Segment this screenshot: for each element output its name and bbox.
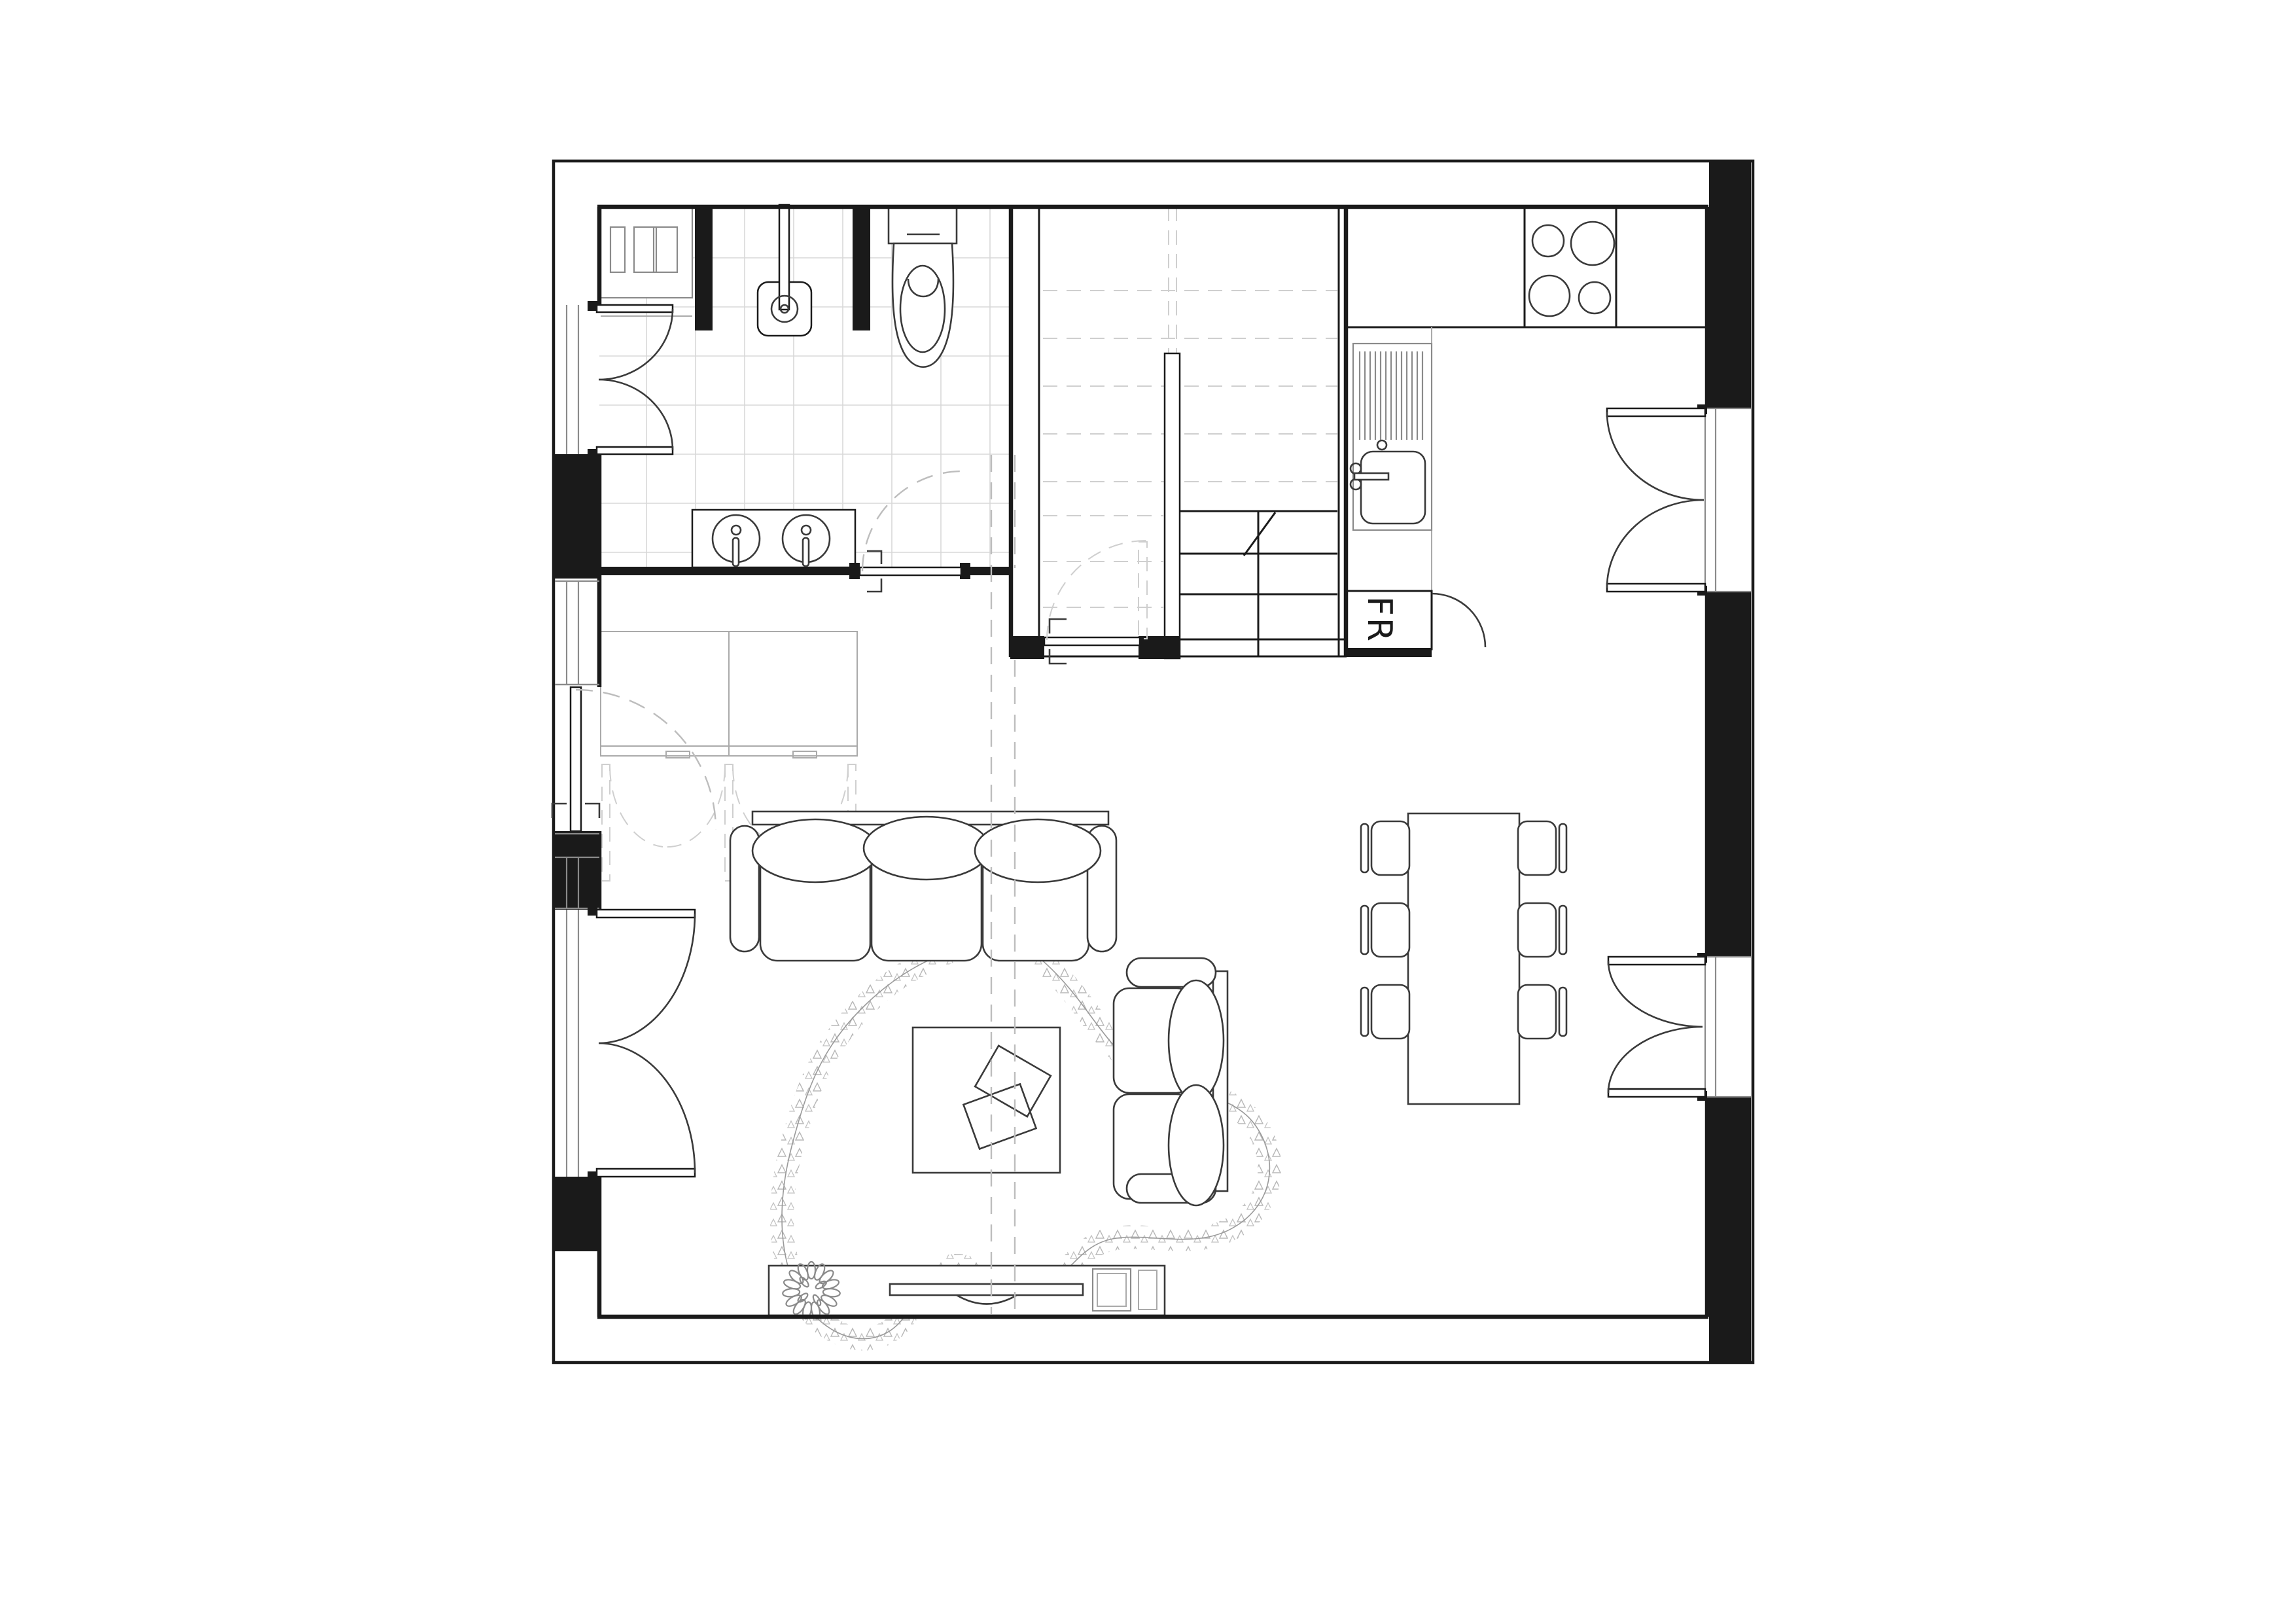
burner-icon: [1571, 222, 1614, 265]
dining-chair: [1371, 903, 1409, 957]
sofa-back-cushion: [1169, 980, 1224, 1101]
door-swing-arc: [1607, 500, 1704, 588]
stove: [1525, 207, 1616, 327]
sofa-2seat: [1114, 958, 1227, 1205]
bathroom-double-doors: [567, 301, 673, 459]
door-leaf: [1608, 957, 1705, 965]
wall-pier: [1709, 592, 1751, 957]
living-room: [730, 811, 1269, 1339]
door-swing-arc: [1608, 961, 1703, 1027]
dining-area: [1361, 813, 1566, 1104]
coffee-table: [913, 1027, 1060, 1173]
bathroom-partition-stub-right: [853, 205, 870, 330]
burner-icon: [1579, 282, 1610, 313]
fridge-door-arc: [1432, 594, 1485, 647]
wall-pier: [1709, 162, 1751, 408]
dining-chairs-left: [1361, 821, 1409, 1039]
wall-pier: [1709, 1097, 1751, 1361]
bathroom: [599, 205, 1009, 592]
vanity-sinks: [692, 510, 855, 567]
sofa-3seat: [730, 811, 1116, 961]
chair-back: [1559, 988, 1566, 1036]
chair-back: [1361, 824, 1368, 872]
shower: [758, 205, 811, 336]
stair-spine-wall: [1165, 353, 1180, 658]
sofa-back-cushion: [864, 817, 989, 880]
door-swing-arc: [1607, 412, 1704, 500]
door-leaf: [1608, 1089, 1705, 1097]
toilet: [889, 207, 957, 367]
door-swing-arc: [1608, 1027, 1703, 1093]
dining-chair: [1518, 985, 1556, 1039]
bathroom-partition-stub-left: [695, 205, 713, 330]
sofa-back-cushion: [1169, 1085, 1224, 1205]
door-leaf: [1607, 408, 1705, 416]
dining-chair: [1371, 821, 1409, 875]
entry-door-leaf: [571, 687, 581, 831]
floor-plan-page: FR: [0, 0, 2296, 1623]
door-swing-arc: [599, 1043, 695, 1173]
door-leaf: [597, 447, 673, 454]
door-swing-arc: [599, 914, 695, 1043]
stair-lower-treads: [1180, 511, 1337, 657]
chair-back: [1361, 906, 1368, 954]
floor-plan-svg: FR: [0, 0, 2296, 1623]
french-doors-right-upper: [1607, 404, 1751, 596]
shower-arm: [779, 205, 789, 310]
french-doors-left: [567, 906, 695, 1181]
toilet-cistern: [889, 207, 957, 243]
stair-hall-door-leaf: [1044, 637, 1140, 645]
door-leaf: [597, 305, 673, 312]
burner-icon: [1532, 225, 1564, 257]
stair-hall-door-swing-arc: [1047, 541, 1146, 640]
stair-spine-dashed: [1169, 207, 1176, 353]
dining-chairs-right: [1518, 821, 1566, 1039]
stair-hall-treads-dashed: [1043, 516, 1163, 607]
wall-pier: [555, 831, 599, 910]
french-doors-right-lower: [1608, 953, 1751, 1101]
kitchen-sink: [1351, 344, 1432, 530]
burner-icon: [1529, 276, 1570, 316]
wall-pier: [555, 1177, 599, 1251]
chair-back: [1559, 824, 1566, 872]
bathroom-door-leaf: [860, 567, 961, 575]
sofa-back-cushion: [975, 819, 1101, 882]
fridge: FR: [1347, 591, 1485, 657]
dining-chair: [1518, 821, 1556, 875]
dining-table: [1408, 813, 1519, 1104]
stair-upper-treads-dashed: [1043, 291, 1337, 482]
door-swing-arc: [599, 309, 673, 380]
dining-chair: [1371, 985, 1409, 1039]
fridge-label: FR: [1360, 596, 1399, 643]
door-leaf: [597, 1169, 695, 1177]
door-leaf: [1607, 584, 1705, 592]
door-swing-arc: [599, 380, 673, 450]
window-left-upper: [555, 581, 599, 685]
dining-chair: [1518, 903, 1556, 957]
chair-back: [1361, 988, 1368, 1036]
bathroom-door: [860, 471, 963, 592]
door-leaf: [597, 910, 695, 918]
tv-console: [769, 1262, 1165, 1319]
staircase: [1010, 207, 1347, 664]
bathroom-door-swing-arc: [862, 471, 963, 571]
wall-pier: [555, 454, 599, 579]
stair-hall-door: [1044, 541, 1147, 664]
sofa-back-cushion: [752, 819, 878, 882]
stair-hall-door-open-leaf: [1139, 542, 1147, 639]
chair-back: [1559, 906, 1566, 954]
